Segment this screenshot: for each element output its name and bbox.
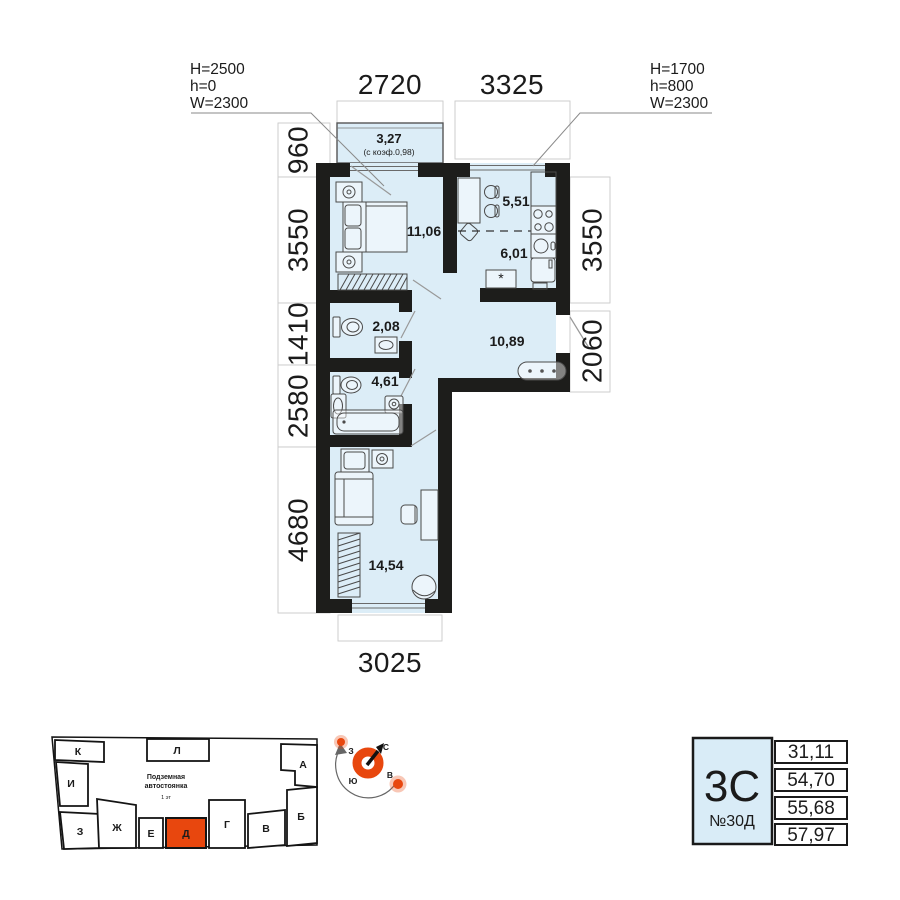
dim-box-top-2	[455, 101, 570, 159]
dim-left-5: 4680	[283, 498, 314, 562]
area-value: 55,68	[787, 798, 835, 819]
underground-parking-floor: 1 эт	[161, 795, 171, 801]
annotation-line: h=800	[650, 78, 694, 95]
annotation-line: H=2500	[190, 61, 245, 78]
annotation-line: H=1700	[650, 61, 705, 78]
apartment-plan-page: *	[0, 0, 900, 900]
dim-left-4: 2580	[283, 374, 314, 438]
living-area-label: 14,54	[368, 557, 403, 573]
appliance-star: *	[498, 270, 504, 286]
dim-right-2: 2060	[577, 319, 608, 383]
compass-east-label: В	[387, 770, 393, 780]
dining-area-label: 5,51	[502, 193, 529, 209]
fridge-icon	[531, 258, 555, 282]
compass: С В Ю З	[334, 735, 407, 798]
sun-marker	[337, 738, 345, 746]
underground-parking-label: Подземная	[147, 774, 185, 781]
block-label: Ж	[111, 822, 122, 834]
block-label-selected: Д	[182, 828, 190, 840]
area-value: 57,97	[787, 825, 835, 846]
dim-left-3: 1410	[283, 302, 314, 366]
block-label: К	[75, 746, 82, 758]
balcony-area-label: 3,27	[376, 131, 401, 146]
sun-marker	[393, 779, 403, 789]
kitchen-area-label: 6,01	[500, 245, 527, 261]
block-label: И	[67, 778, 75, 790]
block-label: Б	[297, 811, 305, 823]
washbasin-icon	[375, 337, 397, 353]
block-label: З	[77, 826, 84, 838]
flat-number-label: №30Д	[709, 813, 755, 830]
block-label: Г	[224, 819, 230, 831]
dim-bottom-1: 3025	[358, 647, 422, 678]
compass-south-label: Ю	[349, 776, 358, 786]
area-value: 31,11	[788, 742, 834, 763]
block-label: В	[262, 823, 270, 835]
underground-parking-label: автостоянка	[145, 783, 188, 790]
dim-left-2: 3550	[283, 208, 314, 272]
washer-icon	[372, 450, 393, 468]
dining-table-icon	[458, 178, 480, 223]
dim-right-1: 3550	[577, 208, 608, 272]
block-label: Е	[147, 828, 154, 840]
balcony-coef-label: (с коэф.0,98)	[363, 147, 414, 157]
nightstand-icon	[336, 252, 362, 272]
area-value: 54,70	[787, 770, 835, 791]
wc-area-label: 2,08	[372, 318, 399, 334]
annotation-line: W=2300	[650, 95, 709, 112]
dim-left-1: 960	[283, 126, 314, 174]
hallway-area-label: 10,89	[489, 333, 524, 349]
dim-top-2: 3325	[480, 69, 544, 100]
bed-icon	[343, 202, 407, 252]
block-label: Л	[173, 745, 180, 757]
dim-box-bottom	[338, 615, 442, 641]
toilet-icon	[333, 317, 340, 337]
site-plan: К Л А И З Ж Е Д Г В Б Подземная автостоя…	[52, 737, 317, 849]
sink-icon	[531, 234, 556, 258]
hallway-furniture	[518, 362, 566, 380]
floor-plan: *	[316, 123, 589, 613]
annotation-line: W=2300	[190, 95, 249, 112]
block-label: А	[299, 759, 307, 771]
plan-type-label: 3С	[704, 762, 760, 811]
dim-top-1: 2720	[358, 69, 422, 100]
toilet-icon	[333, 376, 340, 394]
bedroom-area-label: 11,06	[407, 223, 441, 239]
compass-west-label: З	[348, 746, 353, 756]
desk-icon	[421, 490, 438, 540]
compass-north-label: С	[383, 742, 389, 752]
nightstand-icon	[336, 182, 362, 202]
annotation-line: h=0	[190, 78, 217, 95]
bathroom-area-label: 4,61	[371, 373, 398, 389]
flat-info-card: 3С №30Д 31,11 54,70 55,68 57,97	[693, 738, 847, 846]
